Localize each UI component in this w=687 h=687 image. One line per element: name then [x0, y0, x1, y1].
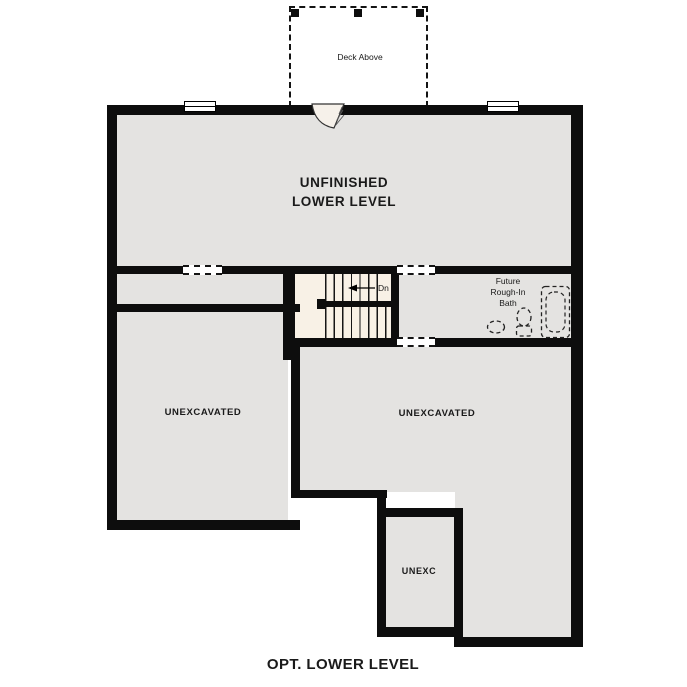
window-icon — [184, 101, 216, 112]
wall — [377, 627, 463, 637]
room-label-unexc: UNEXC — [402, 565, 437, 577]
wall — [377, 498, 386, 637]
deck-post — [416, 9, 424, 17]
wall — [377, 508, 463, 517]
page-title: OPT. LOWER LEVEL — [267, 656, 419, 673]
room-label-unfinished-lower-level: UNFINISHED LOWER LEVEL — [292, 174, 396, 212]
room-label-line: UNFINISHED — [292, 174, 396, 193]
stair-divider-wall — [322, 301, 393, 307]
wall — [291, 338, 399, 347]
wall — [107, 266, 583, 274]
room-label-future-rough-in-bath: Future Rough-In Bath — [491, 276, 526, 309]
room-label-unexcavated-right: UNEXCAVATED — [399, 408, 476, 421]
window-icon — [487, 101, 519, 112]
floor-plan: Deck Above — [0, 0, 687, 687]
wall — [107, 105, 117, 530]
deck-post — [354, 9, 362, 17]
wall — [291, 340, 300, 498]
bath-label-line: Future — [491, 276, 526, 287]
bath-label-line: Bath — [491, 298, 526, 309]
room-label-line: LOWER LEVEL — [292, 193, 396, 212]
wall — [107, 304, 300, 312]
room-label-unexcavated-left: UNEXCAVATED — [165, 407, 242, 420]
wall — [571, 105, 583, 647]
stair-newel-post — [317, 299, 326, 309]
stairs-upper-flight — [325, 271, 378, 302]
floor-unexcavated-right — [455, 342, 575, 641]
deck-label: Deck Above — [337, 52, 382, 63]
wall — [454, 637, 583, 647]
wall-opening — [397, 337, 435, 347]
deck-post — [291, 9, 299, 17]
bath-label-line: Rough-In — [491, 287, 526, 298]
wall-opening — [397, 265, 435, 275]
wall — [291, 490, 387, 498]
wall-opening — [183, 265, 222, 275]
wall — [107, 520, 300, 530]
stairs-lower-flight — [325, 307, 392, 339]
floor-bath-rough-in — [395, 270, 575, 342]
stair-direction-label: Dn — [378, 283, 389, 293]
